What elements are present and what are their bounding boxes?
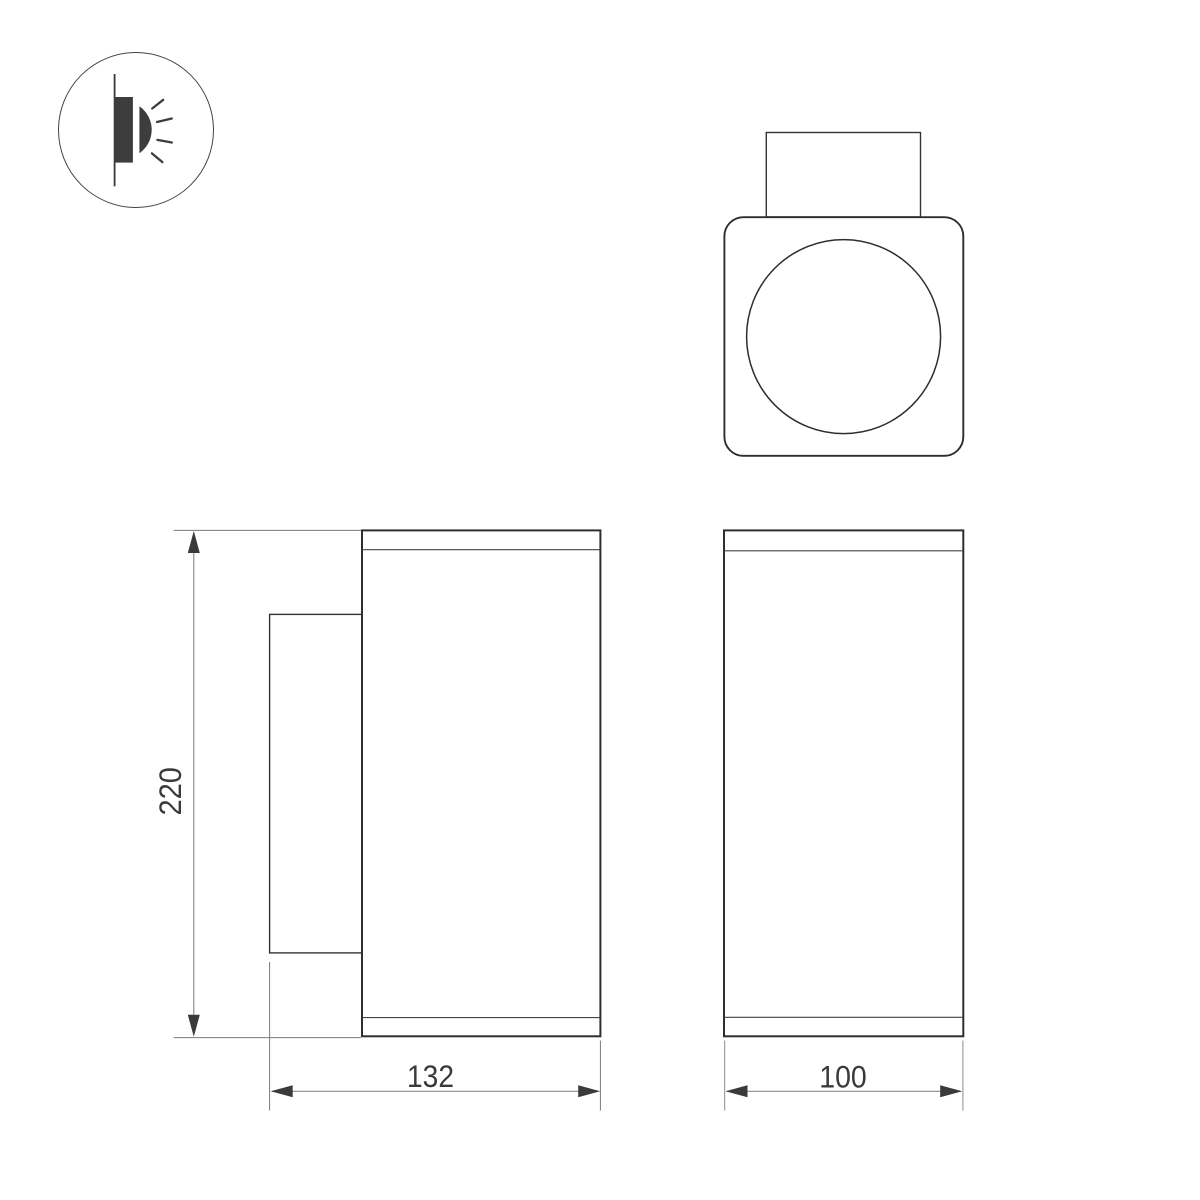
svg-text:220: 220 [152, 767, 188, 816]
svg-text:100: 100 [819, 1059, 867, 1095]
svg-text:132: 132 [407, 1058, 454, 1094]
